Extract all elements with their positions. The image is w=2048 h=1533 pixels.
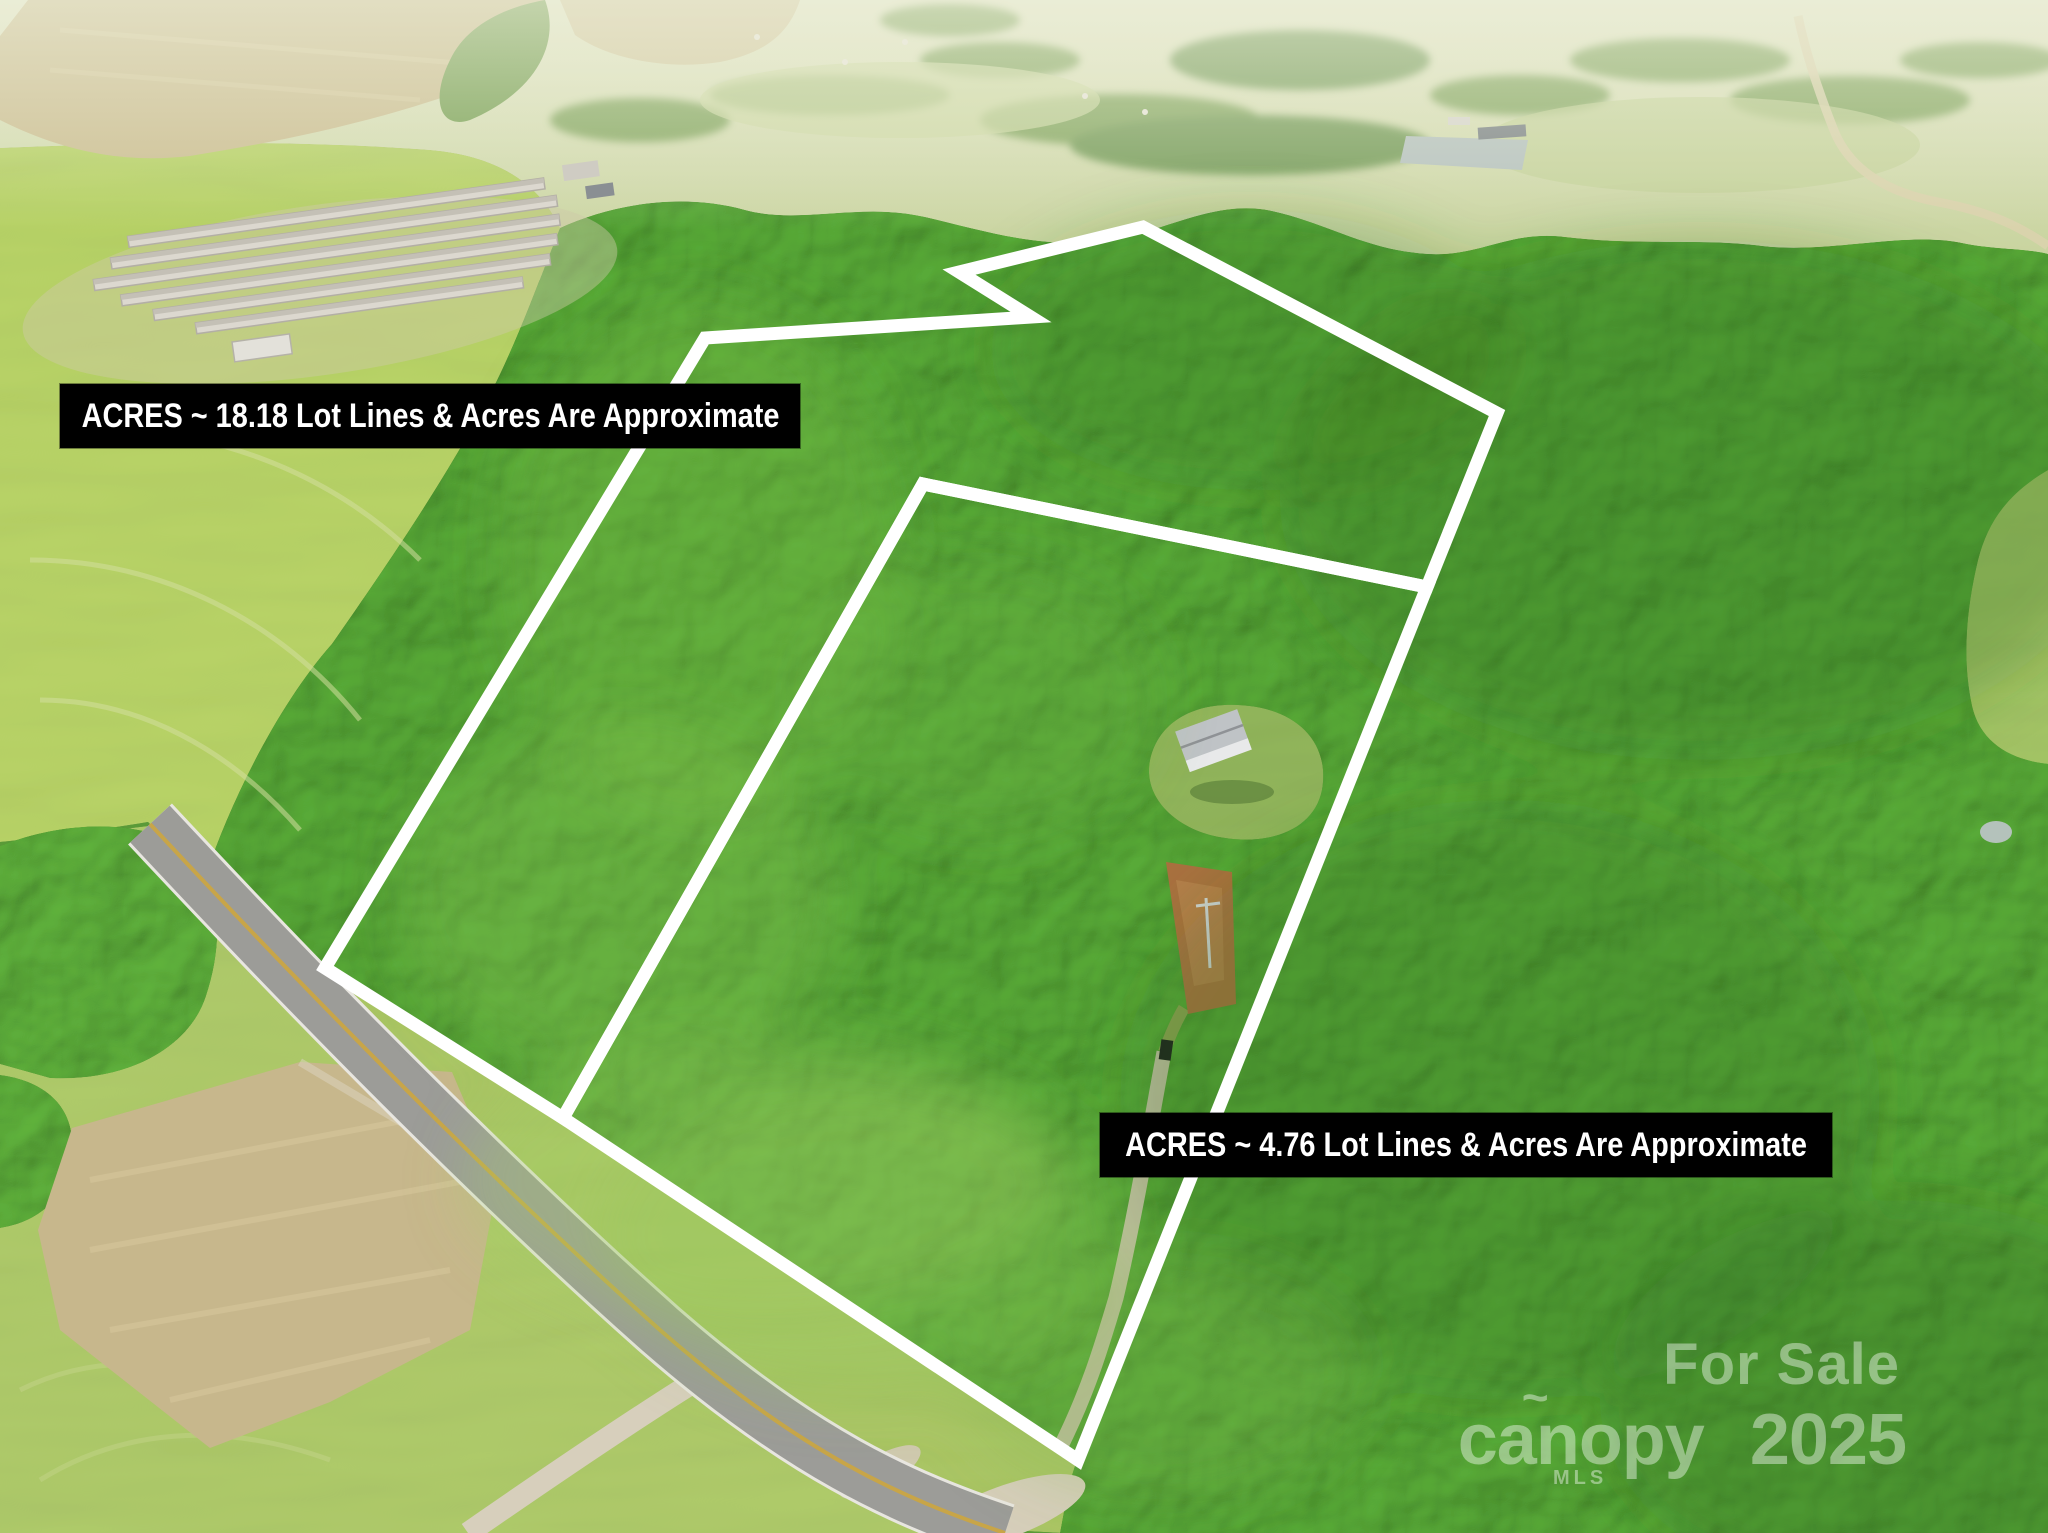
lot-label-4-acres: ACRES ~ 4.76 Lot Lines & Acres Are Appro… — [1100, 1113, 1832, 1177]
watermark-brand: canopy ~ 2025 — [1458, 1404, 1906, 1476]
aerial-listing-photo: ACRES ~ 18.18 Lot Lines & Acres Are Appr… — [0, 0, 2048, 1533]
watermark-for-sale: For Sale — [1663, 1336, 1900, 1394]
lot-label-18-acres: ACRES ~ 18.18 Lot Lines & Acres Are Appr… — [60, 384, 800, 448]
watermark-brand-name: canopy ~ — [1458, 1404, 1704, 1476]
lot-label-4-text: ACRES ~ 4.76 Lot Lines & Acres Are Appro… — [1125, 1126, 1807, 1165]
lot-label-18-text: ACRES ~ 18.18 Lot Lines & Acres Are Appr… — [81, 397, 779, 436]
small-pond — [1980, 821, 2012, 843]
watermark-mls: MLS — [1553, 1468, 1607, 1488]
aerial-photo — [0, 0, 2048, 1533]
watermark-year: 2025 — [1750, 1404, 1906, 1476]
brand-tilde-mark: ~ — [1522, 1374, 1549, 1420]
